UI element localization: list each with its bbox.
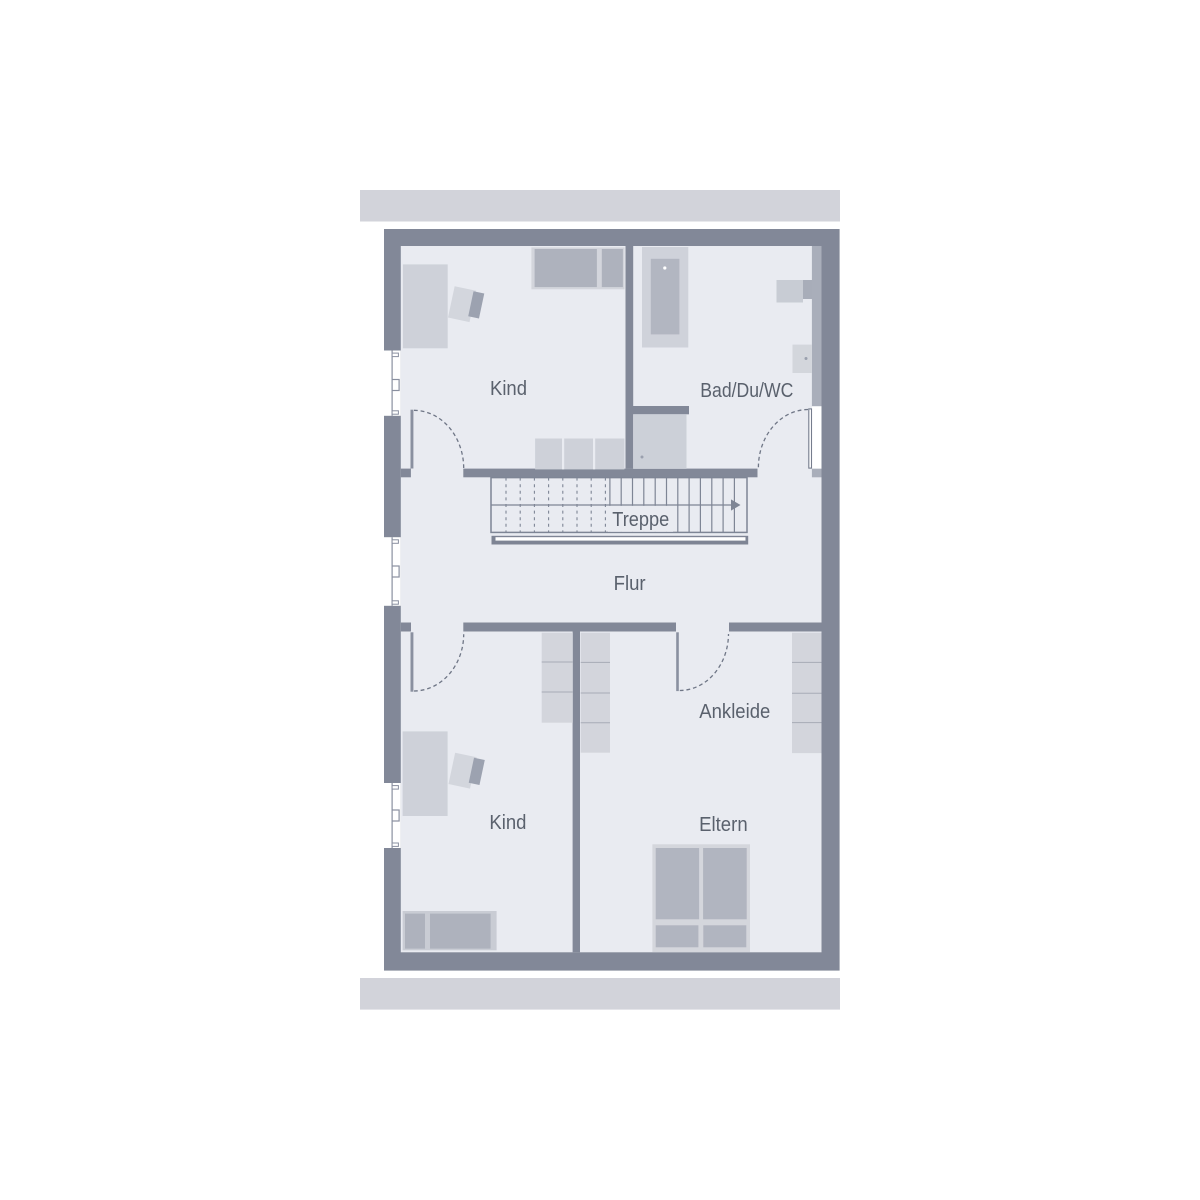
svg-text:Kind: Kind [490,378,527,400]
svg-text:Ankleide: Ankleide [699,701,770,723]
svg-text:Eltern: Eltern [699,814,748,836]
svg-text:Kind: Kind [489,812,526,834]
svg-text:Treppe: Treppe [612,509,669,531]
svg-text:Bad/Du/WC: Bad/Du/WC [700,380,793,402]
svg-text:Flur: Flur [614,573,646,595]
